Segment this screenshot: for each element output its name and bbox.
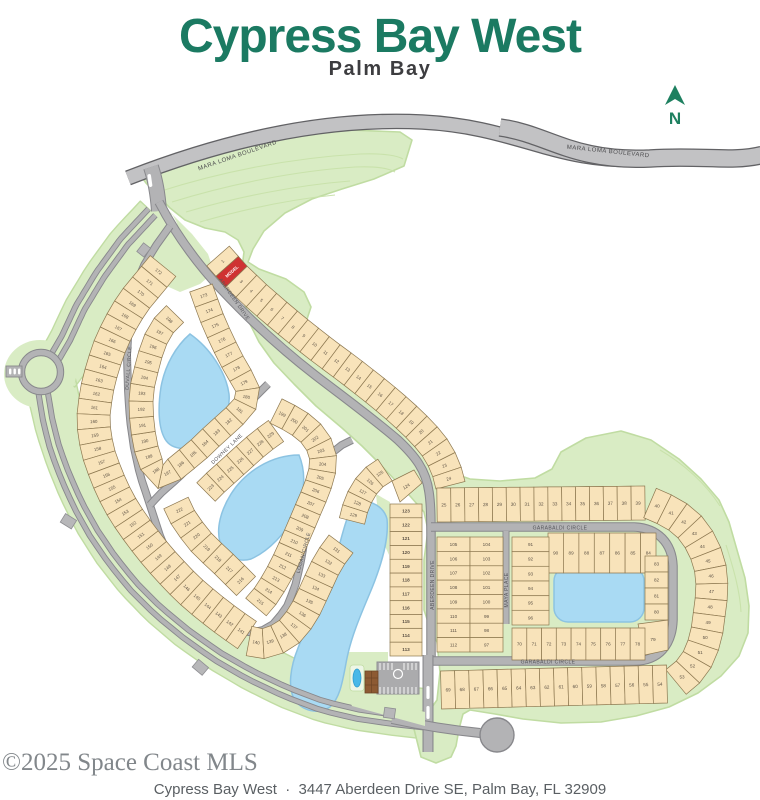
svg-text:57: 57 — [615, 683, 621, 688]
svg-text:192: 192 — [138, 407, 146, 412]
svg-text:111: 111 — [450, 628, 457, 633]
svg-text:67: 67 — [474, 687, 480, 692]
svg-text:63: 63 — [530, 685, 536, 690]
svg-text:122: 122 — [402, 522, 410, 527]
svg-text:61: 61 — [558, 684, 564, 689]
svg-text:103: 103 — [483, 556, 491, 561]
svg-text:55: 55 — [643, 682, 649, 687]
svg-text:120: 120 — [402, 550, 410, 555]
svg-text:114: 114 — [402, 633, 410, 638]
svg-text:64: 64 — [516, 685, 522, 690]
svg-text:76: 76 — [606, 642, 612, 647]
svg-text:MAYA PLACE: MAYA PLACE — [504, 572, 510, 607]
svg-text:47: 47 — [709, 589, 715, 594]
svg-text:110: 110 — [450, 614, 458, 619]
svg-text:30: 30 — [511, 502, 517, 507]
svg-text:89: 89 — [569, 551, 575, 556]
svg-text:119: 119 — [402, 564, 410, 569]
svg-text:43: 43 — [692, 531, 698, 536]
svg-text:113: 113 — [402, 647, 410, 652]
svg-text:42: 42 — [681, 520, 687, 525]
svg-text:117: 117 — [402, 592, 410, 597]
svg-text:94: 94 — [528, 586, 534, 591]
svg-text:28: 28 — [483, 502, 489, 507]
svg-text:81: 81 — [654, 594, 660, 599]
svg-text:52: 52 — [690, 663, 696, 668]
svg-text:ABERDEEN DRIVE: ABERDEEN DRIVE — [430, 560, 436, 610]
svg-text:123: 123 — [402, 509, 410, 514]
svg-text:GARABALDI CIRCLE: GARABALDI CIRCLE — [521, 660, 576, 666]
svg-text:87: 87 — [599, 551, 605, 556]
svg-text:80: 80 — [654, 610, 660, 615]
svg-text:88: 88 — [584, 551, 590, 556]
svg-text:193: 193 — [138, 391, 146, 397]
svg-text:31: 31 — [525, 502, 531, 507]
svg-text:65: 65 — [502, 686, 508, 691]
svg-text:79: 79 — [650, 637, 656, 643]
svg-text:59: 59 — [587, 684, 593, 689]
svg-text:44: 44 — [700, 544, 706, 549]
svg-text:161: 161 — [90, 405, 98, 411]
svg-text:35: 35 — [580, 501, 586, 506]
svg-text:100: 100 — [483, 599, 491, 604]
svg-text:39: 39 — [636, 501, 642, 506]
svg-text:34: 34 — [566, 501, 572, 506]
svg-text:66: 66 — [488, 686, 494, 691]
svg-text:97: 97 — [484, 643, 490, 648]
svg-text:116: 116 — [402, 605, 410, 610]
svg-text:60: 60 — [573, 684, 579, 689]
svg-text:101: 101 — [483, 585, 491, 590]
svg-text:50: 50 — [703, 635, 709, 640]
svg-text:71: 71 — [532, 642, 538, 647]
svg-text:25: 25 — [441, 502, 447, 507]
svg-text:75: 75 — [591, 642, 597, 647]
svg-text:109: 109 — [450, 599, 458, 604]
svg-text:98: 98 — [484, 628, 490, 633]
svg-text:45: 45 — [705, 558, 711, 563]
svg-text:106: 106 — [450, 556, 458, 561]
svg-text:58: 58 — [601, 683, 607, 688]
svg-text:37: 37 — [608, 501, 614, 506]
svg-text:48: 48 — [708, 605, 714, 610]
svg-text:105: 105 — [450, 542, 458, 547]
svg-text:84: 84 — [646, 551, 652, 556]
svg-text:121: 121 — [402, 536, 410, 541]
svg-text:56: 56 — [629, 682, 635, 687]
svg-text:46: 46 — [709, 574, 715, 579]
svg-text:108: 108 — [450, 585, 458, 590]
svg-text:49: 49 — [706, 620, 712, 625]
svg-text:92: 92 — [528, 557, 534, 562]
svg-text:27: 27 — [469, 502, 475, 507]
svg-text:N: N — [669, 109, 681, 128]
svg-text:91: 91 — [528, 542, 534, 547]
svg-text:191: 191 — [138, 422, 146, 428]
svg-text:118: 118 — [402, 578, 410, 583]
svg-text:26: 26 — [455, 502, 461, 507]
svg-text:73: 73 — [561, 642, 567, 647]
svg-text:72: 72 — [546, 642, 552, 647]
svg-text:77: 77 — [620, 642, 626, 647]
svg-text:82: 82 — [654, 578, 660, 583]
svg-text:160: 160 — [90, 419, 98, 424]
svg-text:99: 99 — [484, 614, 490, 619]
svg-text:51: 51 — [698, 650, 704, 655]
svg-text:GARABALDI CIRCLE: GARABALDI CIRCLE — [533, 526, 588, 532]
svg-text:102: 102 — [483, 571, 491, 576]
svg-text:112: 112 — [450, 643, 458, 648]
svg-text:204: 204 — [319, 461, 327, 466]
svg-text:40: 40 — [655, 504, 661, 509]
svg-text:104: 104 — [483, 542, 491, 547]
svg-text:29: 29 — [497, 502, 503, 507]
svg-text:53: 53 — [679, 675, 685, 680]
svg-text:107: 107 — [450, 571, 458, 576]
svg-text:41: 41 — [669, 511, 675, 516]
svg-text:38: 38 — [622, 501, 628, 506]
svg-text:54: 54 — [657, 682, 663, 687]
svg-text:115: 115 — [402, 619, 410, 624]
svg-text:83: 83 — [654, 562, 660, 567]
svg-text:74: 74 — [576, 642, 582, 647]
svg-text:85: 85 — [630, 551, 636, 556]
svg-text:33: 33 — [552, 501, 558, 506]
svg-text:36: 36 — [594, 501, 600, 506]
svg-text:32: 32 — [538, 502, 544, 507]
svg-text:62: 62 — [544, 685, 550, 690]
svg-text:69: 69 — [445, 687, 451, 692]
svg-text:68: 68 — [460, 687, 466, 692]
svg-text:93: 93 — [528, 571, 534, 576]
svg-text:95: 95 — [528, 601, 534, 606]
svg-text:86: 86 — [615, 551, 621, 556]
svg-text:78: 78 — [635, 642, 641, 647]
svg-text:70: 70 — [517, 642, 523, 647]
svg-text:90: 90 — [553, 551, 559, 556]
svg-text:96: 96 — [528, 615, 534, 620]
